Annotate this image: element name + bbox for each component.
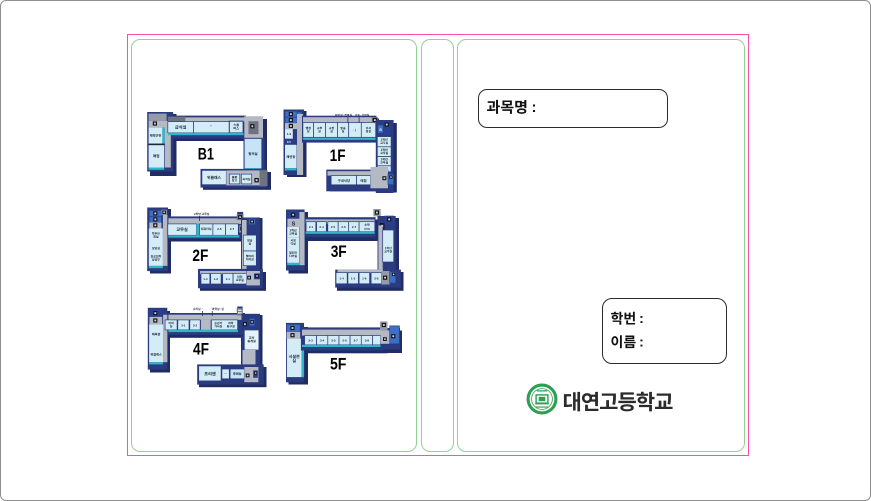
- svg-text:3-2: 3-2: [193, 323, 198, 327]
- svg-text:3-8: 3-8: [374, 277, 379, 281]
- svg-text:S: S: [379, 127, 382, 132]
- svg-text:2F: 2F: [192, 247, 208, 265]
- svg-text:3F: 3F: [331, 243, 347, 261]
- svg-text:2-7: 2-7: [230, 227, 235, 231]
- svg-text:1-2: 1-2: [214, 277, 219, 281]
- svg-text:2-1: 2-1: [309, 225, 314, 229]
- svg-text:2-5: 2-5: [331, 225, 336, 229]
- svg-text:VVS: VVS: [364, 227, 370, 231]
- svg-text:3-1: 3-1: [181, 323, 186, 327]
- svg-text:1-1: 1-1: [226, 277, 231, 281]
- svg-text:1F: 1F: [330, 147, 346, 165]
- svg-text:B1: B1: [198, 145, 214, 163]
- svg-text:1-6: 1-6: [362, 277, 367, 281]
- svg-text:1-9: 1-9: [287, 132, 292, 136]
- svg-text:3-5: 3-5: [331, 339, 336, 343]
- svg-text:3-6: 3-6: [342, 339, 347, 343]
- svg-text:2-4: 2-4: [319, 225, 324, 229]
- svg-text:1-4: 1-4: [339, 277, 344, 281]
- svg-text:3-4: 3-4: [320, 339, 325, 343]
- svg-text:1-5: 1-5: [351, 277, 356, 281]
- svg-text:1-4: 1-4: [203, 277, 208, 281]
- svg-text:2-6: 2-6: [341, 225, 346, 229]
- svg-text:2-7: 2-7: [352, 225, 357, 229]
- svg-text:3-7: 3-7: [354, 339, 359, 343]
- svg-text:· ㅣ: · ㅣ: [353, 128, 358, 132]
- svg-text:EV: EV: [287, 140, 291, 144]
- svg-text:··: ··: [210, 124, 212, 128]
- svg-text:···: ···: [224, 372, 227, 376]
- svg-text:2-8: 2-8: [217, 227, 222, 231]
- svg-text:3-8: 3-8: [365, 339, 370, 343]
- svg-text:S: S: [292, 222, 296, 228]
- svg-text:4F: 4F: [193, 341, 209, 359]
- svg-text:5F: 5F: [330, 355, 347, 373]
- svg-text:3-3: 3-3: [308, 339, 313, 343]
